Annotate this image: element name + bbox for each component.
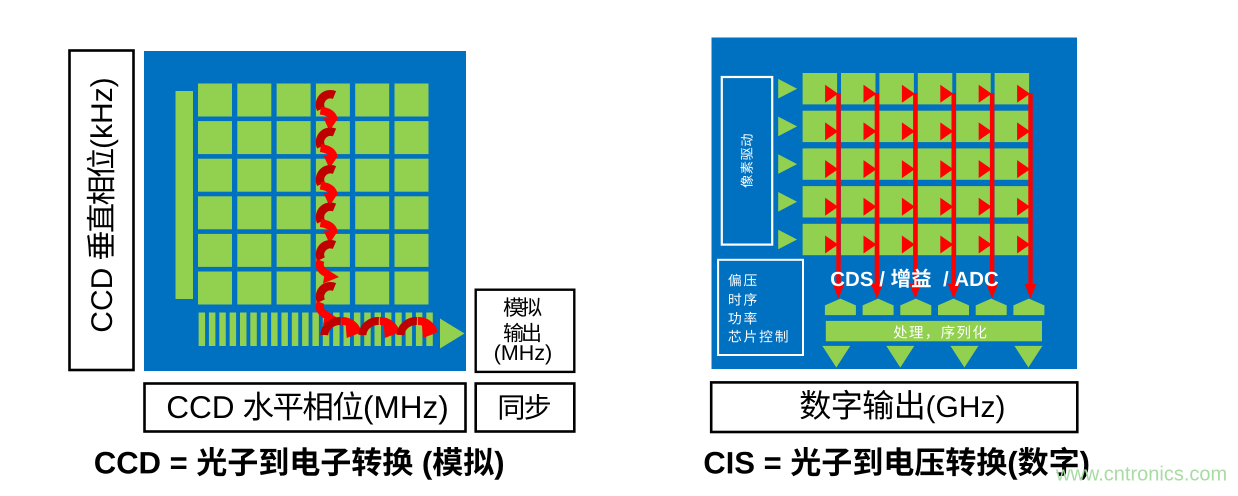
svg-text:www.cntronics.com: www.cntronics.com — [1055, 464, 1227, 486]
